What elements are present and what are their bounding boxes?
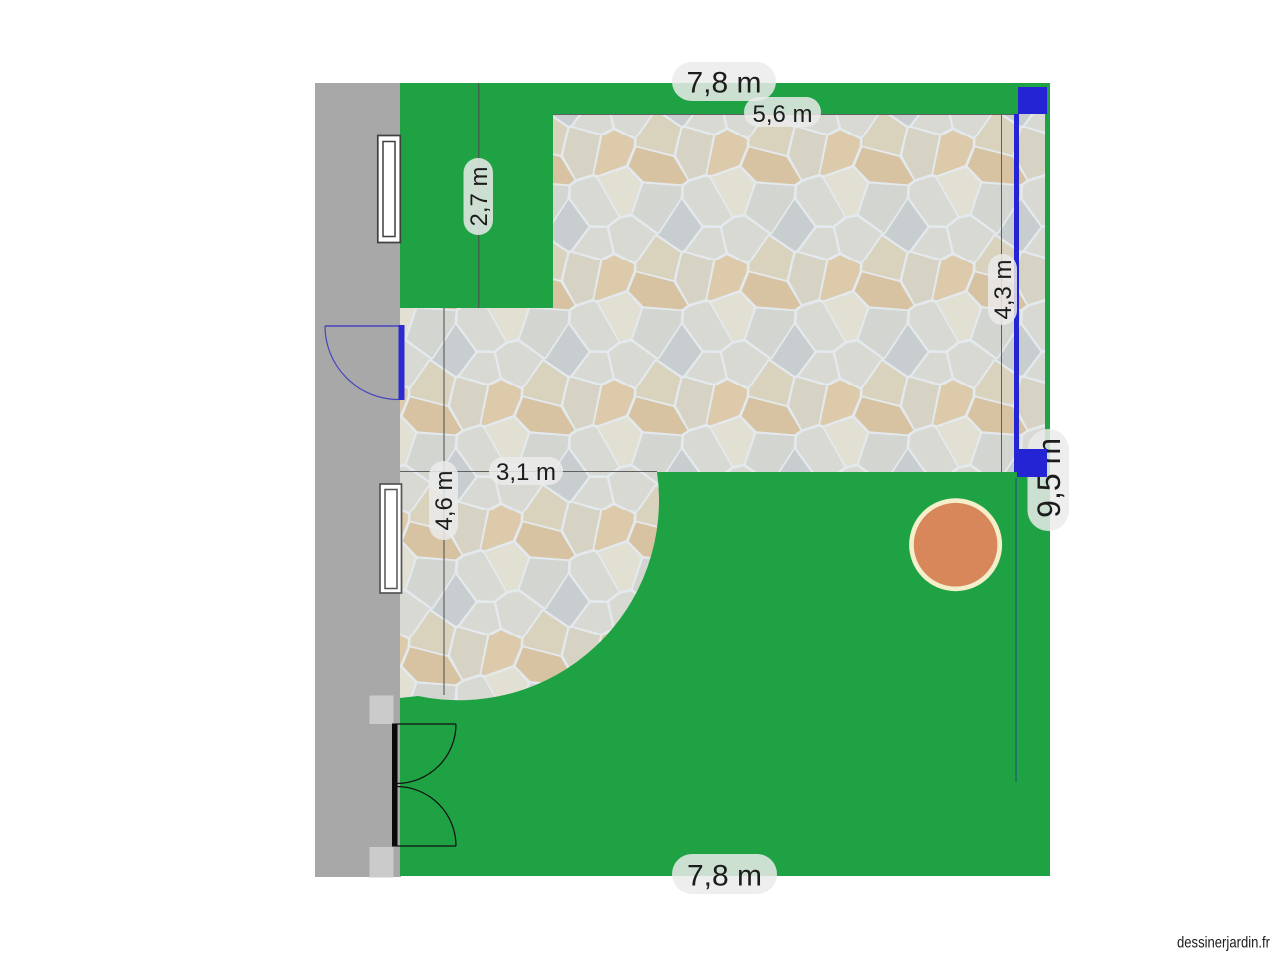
svg-text:7,8 m: 7,8 m [687, 860, 762, 893]
svg-text:3,1 m: 3,1 m [496, 459, 556, 486]
svg-text:2,7 m: 2,7 m [466, 166, 493, 226]
svg-text:5,6 m: 5,6 m [752, 101, 812, 128]
svg-text:4,3 m: 4,3 m [990, 259, 1017, 319]
svg-text:4,6 m: 4,6 m [431, 470, 458, 530]
svg-text:7,8 m: 7,8 m [686, 67, 761, 100]
svg-text:dessinerjardin.fr: dessinerjardin.fr [1177, 935, 1271, 952]
